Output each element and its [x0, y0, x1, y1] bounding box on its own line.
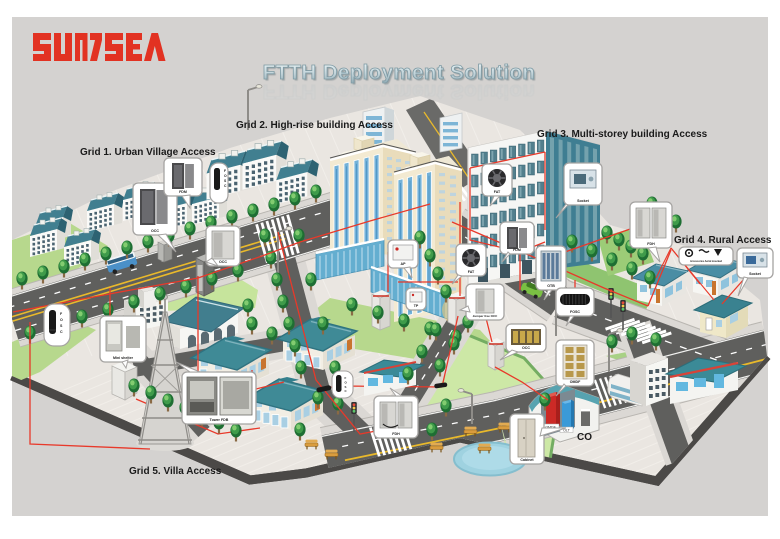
svg-text:FAT: FAT: [494, 190, 501, 194]
svg-text:FDH: FDH: [392, 432, 400, 436]
svg-text:FTTH Deployment Solution: FTTH Deployment Solution: [263, 80, 536, 103]
svg-text:Grid 5. Villa Access: Grid 5. Villa Access: [129, 466, 222, 477]
svg-text:O: O: [224, 174, 227, 178]
svg-text:O: O: [60, 318, 63, 322]
svg-text:FDM: FDM: [179, 190, 187, 194]
svg-text:C: C: [60, 330, 63, 334]
svg-text:AP: AP: [401, 262, 407, 266]
svg-text:FDH: FDH: [647, 242, 655, 246]
svg-text:Grid 2. High-rise building Acc: Grid 2. High-rise building Access: [236, 120, 393, 131]
svg-text:Tower FDB: Tower FDB: [210, 418, 229, 422]
svg-text:OTB: OTB: [547, 284, 555, 288]
svg-text:OCC: OCC: [219, 260, 227, 264]
svg-text:Socket: Socket: [749, 272, 762, 276]
svg-text:S: S: [345, 385, 347, 389]
svg-text:OCC: OCC: [522, 346, 530, 350]
svg-text:Grid 3. Multi-storey building: Grid 3. Multi-storey building Access: [537, 129, 708, 140]
svg-text:Grid 4. Rural Access: Grid 4. Rural Access: [674, 235, 772, 246]
svg-text:Grid 1. Urban Village Access: Grid 1. Urban Village Access: [80, 147, 216, 158]
svg-text:Accessories Aerial mounted: Accessories Aerial mounted: [690, 260, 723, 263]
svg-text:FAT: FAT: [468, 270, 475, 274]
svg-text:FDM: FDM: [513, 248, 521, 252]
svg-text:OCC: OCC: [151, 229, 159, 233]
svg-text:Jumper free OCC: Jumper free OCC: [473, 314, 499, 318]
svg-text:OMDF: OMDF: [570, 380, 581, 384]
svg-text:TP: TP: [414, 304, 419, 308]
svg-text:F: F: [345, 376, 347, 380]
svg-text:F: F: [224, 169, 226, 173]
svg-text:Cabinet: Cabinet: [520, 458, 534, 462]
svg-text:FOSC: FOSC: [570, 310, 580, 314]
svg-text:CO: CO: [577, 432, 592, 443]
svg-text:Socket: Socket: [577, 199, 590, 203]
svg-text:Mini shelter: Mini shelter: [113, 356, 134, 360]
